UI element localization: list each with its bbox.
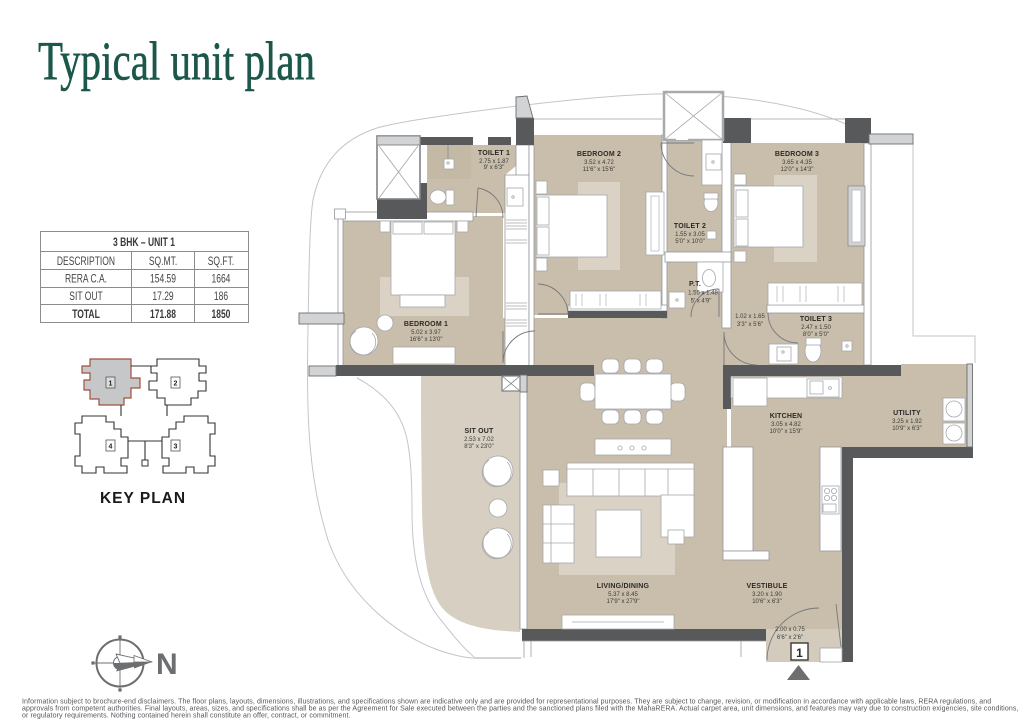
svg-text:DESCRIPTION: DESCRIPTION: [57, 256, 115, 269]
svg-text:approvals from competent autho: approvals from competent authorities. Fi…: [22, 706, 1018, 713]
svg-text:4: 4: [109, 444, 113, 451]
svg-text:9' x 6'3": 9' x 6'3": [484, 165, 505, 171]
svg-text:LIVING/DINING: LIVING/DINING: [597, 583, 650, 590]
svg-text:RERA C.A.: RERA C.A.: [65, 273, 107, 286]
svg-text:5.37 x 8.45: 5.37 x 8.45: [608, 592, 638, 598]
svg-text:16'6" x 13'0": 16'6" x 13'0": [410, 337, 443, 343]
svg-text:N: N: [156, 648, 178, 681]
svg-text:SQ.MT.: SQ.MT.: [149, 256, 177, 269]
svg-text:VESTIBULE: VESTIBULE: [746, 583, 787, 590]
svg-text:SQ.FT.: SQ.FT.: [208, 256, 234, 269]
svg-text:BEDROOM 3: BEDROOM 3: [775, 151, 819, 158]
svg-text:3.20 x 1.90: 3.20 x 1.90: [752, 592, 782, 598]
svg-text:3'3" x 5'6": 3'3" x 5'6": [737, 322, 763, 328]
svg-text:2: 2: [174, 381, 178, 388]
svg-text:10'0" x 15'9": 10'0" x 15'9": [770, 429, 803, 435]
svg-text:2.47 x 1.50: 2.47 x 1.50: [801, 325, 831, 331]
svg-text:12'0" x 14'3": 12'0" x 14'3": [781, 167, 814, 173]
svg-text:5' x 4'9": 5' x 4'9": [691, 299, 712, 305]
svg-text:BEDROOM 2: BEDROOM 2: [577, 151, 621, 158]
svg-text:SIT OUT: SIT OUT: [464, 428, 494, 435]
svg-text:1.02 x 1.65: 1.02 x 1.65: [735, 314, 765, 320]
svg-text:11'6" x 15'6": 11'6" x 15'6": [583, 167, 615, 173]
svg-text:TOILET 2: TOILET 2: [674, 223, 706, 230]
svg-text:171.88: 171.88: [150, 309, 176, 322]
svg-text:1: 1: [796, 646, 803, 660]
svg-text:UTILITY: UTILITY: [893, 410, 921, 417]
svg-text:17'9" x 27'9": 17'9" x 27'9": [607, 599, 640, 605]
svg-text:1664: 1664: [212, 273, 231, 286]
svg-text:1.55 x 1.48: 1.55 x 1.48: [688, 291, 718, 297]
svg-text:Typical unit plan: Typical unit plan: [38, 32, 315, 92]
svg-text:5.02 x 3.97: 5.02 x 3.97: [411, 330, 441, 336]
svg-text:Information subject to brochur: Information subject to brochure-end disc…: [22, 699, 991, 706]
svg-text:10'6" x 6'3": 10'6" x 6'3": [752, 599, 782, 605]
svg-text:17.29: 17.29: [152, 291, 174, 304]
svg-text:10'9" x 6'3": 10'9" x 6'3": [892, 426, 922, 432]
svg-text:8'0" x 5'0": 8'0" x 5'0": [803, 332, 829, 338]
svg-text:186: 186: [214, 291, 229, 304]
svg-text:2.53 x 7.02: 2.53 x 7.02: [464, 437, 494, 443]
svg-text:SIT OUT: SIT OUT: [69, 291, 102, 304]
svg-text:1: 1: [109, 381, 113, 388]
svg-text:BEDROOM 1: BEDROOM 1: [404, 321, 448, 328]
svg-text:1850: 1850: [212, 309, 231, 322]
svg-text:2.00 x 0.75: 2.00 x 0.75: [775, 627, 805, 633]
svg-text:TOILET 3: TOILET 3: [800, 316, 832, 323]
svg-text:KITCHEN: KITCHEN: [770, 413, 803, 420]
svg-text:TOTAL: TOTAL: [72, 309, 100, 322]
svg-text:3.65 x 4.35: 3.65 x 4.35: [782, 160, 812, 166]
svg-text:1.55 x 3.05: 1.55 x 3.05: [675, 232, 705, 238]
svg-text:TOILET 1: TOILET 1: [478, 150, 510, 157]
svg-text:3: 3: [174, 444, 178, 451]
svg-text:3 BHK – UNIT 1: 3 BHK – UNIT 1: [113, 237, 175, 250]
svg-text:3.52 x 4.72: 3.52 x 4.72: [584, 160, 614, 166]
svg-text:P.T.: P.T.: [689, 281, 701, 288]
svg-text:3.25 x 1.92: 3.25 x 1.92: [892, 419, 922, 425]
svg-text:or regulatory requirements. No: or regulatory requirements. Nothing cont…: [22, 713, 351, 720]
svg-text:8'3" x 23'0": 8'3" x 23'0": [464, 444, 494, 450]
svg-text:3.05 x 4.82: 3.05 x 4.82: [771, 422, 801, 428]
svg-text:5'0" x 10'0": 5'0" x 10'0": [675, 239, 705, 245]
svg-text:154.59: 154.59: [150, 273, 176, 286]
svg-text:KEY PLAN: KEY PLAN: [100, 490, 186, 507]
svg-text:6'6" x 2'6": 6'6" x 2'6": [777, 635, 803, 641]
